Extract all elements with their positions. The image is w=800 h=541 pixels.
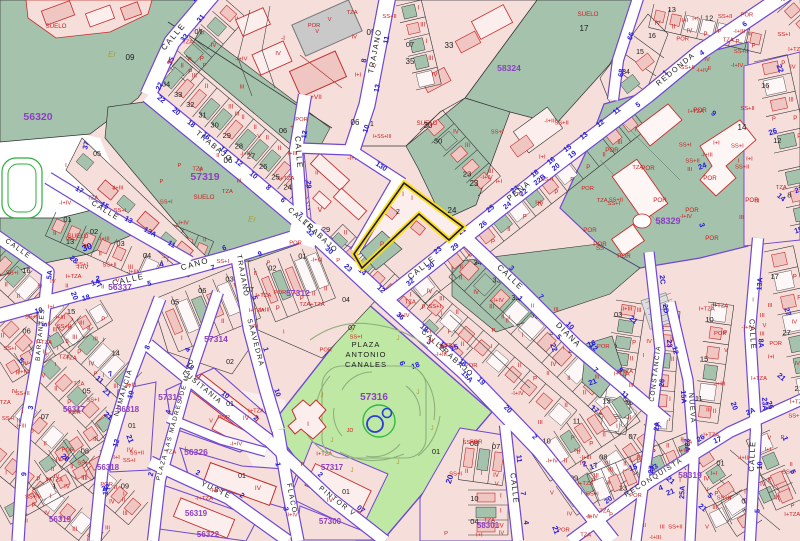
- svg-text:SS+I: SS+I: [731, 144, 744, 150]
- svg-text:POR: POR: [581, 186, 594, 192]
- svg-text:POR: POR: [465, 363, 478, 369]
- svg-text:II: II: [17, 294, 21, 300]
- svg-text:I+TZA: I+TZA: [784, 512, 800, 518]
- svg-text:13: 13: [602, 396, 610, 405]
- svg-text:I+TZA: I+TZA: [614, 372, 630, 378]
- svg-text:III: III: [81, 476, 86, 482]
- svg-text:IV: IV: [646, 339, 652, 345]
- svg-text:I+TZA: I+TZA: [751, 376, 767, 382]
- svg-text:14: 14: [738, 123, 747, 132]
- svg-text:2D: 2D: [661, 304, 671, 314]
- svg-text:11: 11: [514, 454, 524, 463]
- svg-text:J: J: [331, 438, 334, 444]
- svg-text:I+I: I+I: [682, 18, 689, 24]
- svg-text:-I+III: -I+III: [733, 29, 745, 35]
- svg-text:POR: POR: [289, 241, 302, 247]
- svg-text:P: P: [491, 240, 495, 246]
- svg-text:28: 28: [235, 141, 243, 150]
- svg-text:SS+I: SS+I: [586, 492, 599, 498]
- svg-text:29: 29: [304, 180, 314, 189]
- svg-text:POR: POR: [703, 175, 717, 182]
- svg-text:SS+I: SS+I: [37, 322, 50, 328]
- svg-text:V: V: [257, 134, 261, 140]
- svg-text:II: II: [564, 458, 568, 464]
- svg-text:J: J: [431, 426, 434, 432]
- svg-text:II: II: [87, 326, 91, 332]
- svg-text:II: II: [53, 231, 57, 237]
- svg-text:II: II: [672, 25, 676, 31]
- svg-text:IV: IV: [352, 34, 358, 40]
- svg-text:SS+II: SS+II: [102, 263, 117, 269]
- svg-text:SS+I: SS+I: [75, 262, 88, 268]
- svg-text:SUELO: SUELO: [194, 194, 215, 201]
- svg-text:SS+II: SS+II: [15, 391, 30, 397]
- svg-text:POR: POR: [641, 165, 655, 172]
- svg-text:12: 12: [299, 130, 309, 139]
- svg-text:SS+I: SS+I: [607, 201, 620, 207]
- svg-text:IV: IV: [109, 499, 115, 505]
- svg-text:-I+IV: -I+IV: [235, 57, 248, 63]
- svg-text:III: III: [72, 527, 77, 533]
- svg-text:I+TZA: I+TZA: [47, 478, 63, 484]
- svg-text:I+TZA: I+TZA: [66, 274, 82, 280]
- svg-text:11: 11: [695, 394, 703, 403]
- svg-text:-I+IV: -I+IV: [397, 313, 410, 319]
- svg-text:P: P: [735, 40, 739, 46]
- svg-text:5: 5: [753, 509, 762, 513]
- svg-text:II: II: [114, 485, 118, 491]
- svg-text:POR: POR: [308, 23, 321, 29]
- svg-text:I+TZA: I+TZA: [248, 409, 264, 415]
- svg-text:II: II: [216, 153, 220, 159]
- svg-text:J: J: [397, 460, 400, 466]
- svg-text:30: 30: [210, 121, 218, 130]
- svg-text:J: J: [351, 328, 354, 334]
- svg-text:56320: 56320: [23, 111, 52, 123]
- svg-text:IV: IV: [790, 65, 796, 71]
- svg-text:III: III: [789, 98, 794, 104]
- svg-text:I+I: I+I: [574, 448, 581, 454]
- svg-text:III: III: [637, 308, 642, 314]
- svg-text:J: J: [417, 390, 420, 396]
- svg-text:-I+IV: -I+IV: [176, 220, 189, 226]
- svg-text:III: III: [123, 511, 128, 517]
- svg-text:56337: 56337: [108, 282, 132, 292]
- svg-text:II: II: [713, 409, 717, 415]
- svg-text:SS+II: SS+II: [734, 49, 749, 55]
- svg-text:58329: 58329: [655, 216, 680, 226]
- svg-text:II: II: [671, 357, 675, 363]
- svg-text:SS+II: SS+II: [717, 496, 732, 502]
- svg-text:III: III: [105, 525, 110, 531]
- svg-text:IV: IV: [168, 60, 174, 66]
- svg-text:IV: IV: [12, 389, 18, 395]
- svg-text:POR: POR: [218, 415, 231, 421]
- svg-text:SS+I: SS+I: [2, 416, 15, 422]
- svg-text:III: III: [687, 167, 692, 173]
- svg-text:V: V: [724, 348, 728, 354]
- svg-text:II: II: [666, 443, 670, 449]
- svg-text:III: III: [235, 111, 240, 117]
- svg-text:II: II: [181, 63, 185, 69]
- svg-text:III: III: [617, 140, 622, 146]
- svg-text:II: II: [789, 462, 793, 468]
- svg-text:II: II: [266, 136, 270, 142]
- svg-text:CANALES: CANALES: [345, 360, 387, 369]
- svg-text:30: 30: [434, 136, 442, 145]
- svg-text:TZA: TZA: [73, 381, 84, 387]
- svg-text:III: III: [768, 303, 773, 309]
- svg-text:-I: -I: [281, 35, 285, 42]
- svg-text:P: P: [571, 436, 575, 442]
- svg-text:P: P: [791, 503, 795, 509]
- svg-text:57317: 57317: [321, 463, 344, 472]
- svg-text:01: 01: [342, 489, 350, 496]
- svg-text:TZA: TZA: [192, 167, 203, 173]
- svg-text:-I+IV: -I+IV: [59, 200, 72, 206]
- svg-text:II: II: [101, 285, 105, 291]
- svg-text:31: 31: [198, 110, 206, 119]
- svg-text:Er: Er: [108, 50, 116, 59]
- svg-text:-I+IV: -I+IV: [741, 325, 754, 331]
- svg-text:P: P: [751, 43, 755, 49]
- svg-text:56319: 56319: [49, 515, 72, 524]
- svg-text:IV: IV: [252, 324, 258, 330]
- svg-text:07: 07: [41, 412, 49, 421]
- svg-text:IV: IV: [473, 290, 479, 296]
- svg-text:-I+IV: -I+IV: [285, 513, 298, 519]
- svg-text:-I+III: -I+III: [738, 455, 750, 461]
- svg-text:15: 15: [636, 49, 644, 56]
- svg-text:I+I: I+I: [425, 329, 432, 335]
- svg-text:II: II: [99, 251, 103, 257]
- svg-text:-I+IV: -I+IV: [680, 214, 693, 220]
- svg-text:III: III: [428, 338, 433, 344]
- svg-text:07: 07: [406, 40, 414, 49]
- svg-text:SS+II: SS+II: [740, 106, 755, 112]
- svg-text:32: 32: [186, 100, 194, 109]
- svg-text:SS+I: SS+I: [3, 346, 16, 352]
- svg-text:III: III: [239, 85, 244, 91]
- svg-text:I+I: I+I: [495, 179, 502, 185]
- svg-text:I+I: I+I: [476, 532, 483, 538]
- svg-text:-I+IV: -I+IV: [731, 63, 744, 69]
- svg-text:57316: 57316: [360, 392, 388, 403]
- svg-text:II: II: [51, 467, 55, 473]
- svg-text:24: 24: [283, 183, 291, 192]
- svg-text:JD: JD: [347, 428, 354, 434]
- svg-text:-I+III: -I+III: [435, 352, 447, 358]
- svg-text:IV: IV: [211, 43, 217, 49]
- svg-text:III: III: [192, 74, 197, 80]
- svg-text:III: III: [747, 32, 752, 38]
- svg-text:TZA: TZA: [632, 165, 643, 171]
- svg-text:V: V: [767, 436, 771, 442]
- svg-text:II: II: [531, 304, 535, 310]
- svg-text:P: P: [491, 328, 495, 334]
- svg-text:I: I: [402, 191, 404, 198]
- svg-text:SS+II: SS+II: [382, 14, 397, 20]
- svg-text:-I+IV: -I+IV: [240, 151, 253, 157]
- svg-text:P: P: [591, 478, 595, 484]
- svg-text:V: V: [328, 17, 332, 23]
- svg-text:SS+II: SS+II: [130, 450, 145, 456]
- svg-text:23: 23: [463, 169, 471, 178]
- svg-text:11: 11: [573, 416, 581, 425]
- svg-text:I+I: I+I: [113, 455, 120, 461]
- svg-text:IV: IV: [704, 57, 710, 63]
- svg-text:SUELO: SUELO: [46, 23, 67, 30]
- svg-text:IV: IV: [493, 473, 499, 479]
- svg-text:58324: 58324: [497, 63, 521, 73]
- svg-text:IV: IV: [453, 130, 459, 136]
- svg-text:09: 09: [121, 481, 129, 490]
- svg-text:POR: POR: [676, 37, 689, 43]
- svg-text:III: III: [605, 461, 610, 467]
- svg-text:33: 33: [174, 90, 182, 99]
- svg-text:SS+II: SS+II: [680, 65, 695, 71]
- svg-text:04: 04: [143, 251, 151, 260]
- svg-text:12: 12: [773, 136, 781, 145]
- svg-text:P: P: [586, 165, 590, 171]
- svg-text:P: P: [68, 326, 72, 332]
- svg-text:SS+I: SS+I: [86, 398, 99, 404]
- svg-text:POR: POR: [470, 439, 483, 445]
- svg-text:II: II: [628, 416, 632, 422]
- svg-text:V: V: [65, 237, 69, 243]
- svg-text:01: 01: [298, 252, 306, 261]
- svg-text:I: I: [307, 421, 309, 428]
- svg-text:IV: IV: [551, 362, 557, 368]
- svg-text:II: II: [602, 433, 606, 439]
- svg-text:P: P: [177, 163, 181, 169]
- svg-text:06: 06: [351, 118, 360, 127]
- svg-text:68: 68: [616, 68, 626, 77]
- svg-text:56318: 56318: [97, 463, 120, 472]
- svg-text:CALLE: CALLE: [747, 319, 758, 351]
- svg-text:I+TZA: I+TZA: [688, 109, 704, 115]
- svg-text:I+TZA: I+TZA: [278, 176, 294, 182]
- svg-text:05: 05: [82, 386, 90, 395]
- svg-text:TZA: TZA: [87, 195, 98, 201]
- svg-text:09: 09: [126, 53, 135, 62]
- svg-text:P: P: [336, 258, 340, 264]
- svg-text:TZA: TZA: [0, 400, 11, 406]
- svg-text:-I+IV: -I+IV: [676, 448, 689, 454]
- svg-text:01: 01: [128, 423, 136, 430]
- svg-text:II: II: [65, 339, 69, 345]
- svg-text:P: P: [523, 215, 527, 221]
- svg-text:24: 24: [448, 206, 457, 215]
- svg-text:10: 10: [470, 494, 478, 503]
- svg-text:I+I: I+I: [746, 156, 753, 162]
- svg-text:II: II: [43, 350, 47, 356]
- svg-text:-I+III: -I+III: [649, 535, 661, 541]
- svg-text:SS+I: SS+I: [428, 304, 441, 310]
- svg-text:P: P: [772, 116, 776, 122]
- svg-text:II: II: [205, 84, 209, 90]
- svg-text:-I+IV: -I+IV: [511, 391, 524, 397]
- svg-text:-I+III: -I+III: [258, 308, 270, 314]
- svg-text:II: II: [507, 227, 511, 233]
- svg-text:03: 03: [116, 239, 124, 248]
- svg-text:I+I: I+I: [765, 447, 772, 453]
- svg-text:II: II: [54, 387, 58, 393]
- svg-text:III: III: [538, 420, 543, 426]
- svg-text:III: III: [760, 313, 765, 319]
- svg-text:I+I: I+I: [692, 17, 699, 23]
- svg-text:TZA+TZA: TZA+TZA: [299, 302, 324, 308]
- svg-text:9: 9: [19, 472, 28, 477]
- svg-text:56319: 56319: [185, 509, 208, 518]
- svg-text:II: II: [5, 283, 9, 289]
- svg-text:II: II: [643, 523, 647, 529]
- svg-text:SS+I: SS+I: [123, 458, 136, 464]
- svg-text:04: 04: [342, 297, 350, 304]
- svg-text:I+TZA: I+TZA: [712, 303, 728, 309]
- svg-text:P: P: [101, 317, 105, 323]
- svg-text:57315: 57315: [158, 392, 182, 402]
- svg-text:POR: POR: [605, 147, 619, 154]
- svg-text:I+TZA: I+TZA: [790, 399, 800, 405]
- svg-text:III: III: [760, 332, 765, 338]
- svg-text:SS+I: SS+I: [216, 259, 229, 265]
- svg-text:-I+IV: -I+IV: [480, 175, 493, 181]
- svg-text:V: V: [116, 278, 120, 284]
- svg-text:IV: IV: [23, 361, 29, 367]
- svg-text:I+I: I+I: [354, 73, 361, 79]
- svg-text:POR: POR: [653, 197, 667, 204]
- svg-text:IV: IV: [243, 415, 250, 422]
- svg-text:27: 27: [783, 328, 791, 337]
- svg-text:-I+III: -I+III: [53, 315, 65, 321]
- svg-text:POR: POR: [583, 227, 597, 234]
- svg-text:J: J: [351, 468, 354, 474]
- svg-text:P: P: [589, 441, 593, 447]
- svg-text:07: 07: [246, 287, 254, 294]
- svg-text:TZA: TZA: [723, 38, 734, 44]
- svg-text:II: II: [221, 319, 225, 325]
- svg-text:III: III: [465, 143, 470, 149]
- svg-text:SS+I: SS+I: [777, 32, 790, 38]
- svg-text:POR: POR: [629, 493, 642, 499]
- svg-text:V: V: [705, 524, 709, 530]
- svg-text:I+SS+III: I+SS+III: [373, 134, 392, 140]
- svg-text:TZA: TZA: [599, 509, 610, 515]
- svg-text:IV: IV: [517, 192, 523, 198]
- svg-text:II: II: [456, 310, 460, 316]
- svg-text:III: III: [93, 337, 98, 343]
- svg-text:SS+I: SS+I: [679, 142, 692, 148]
- svg-text:III: III: [428, 56, 433, 62]
- svg-text:IV: IV: [792, 320, 798, 326]
- svg-text:-I+IV: -I+IV: [17, 370, 30, 376]
- svg-text:10: 10: [705, 315, 713, 324]
- svg-text:2C: 2C: [658, 275, 668, 285]
- svg-text:15A: 15A: [679, 390, 689, 404]
- svg-text:II: II: [518, 363, 522, 369]
- svg-text:14: 14: [112, 349, 120, 358]
- svg-text:III: III: [113, 384, 118, 390]
- svg-text:Er: Er: [248, 215, 256, 224]
- svg-text:-I+III: -I+III: [286, 151, 298, 157]
- svg-text:POR: POR: [617, 253, 631, 260]
- svg-text:P: P: [276, 306, 280, 312]
- svg-text:II: II: [70, 465, 74, 471]
- svg-text:II: II: [344, 230, 348, 236]
- svg-text:V: V: [705, 487, 709, 493]
- svg-text:-I+TZA: -I+TZA: [195, 496, 213, 502]
- svg-text:IV: IV: [89, 362, 95, 368]
- svg-text:III: III: [706, 408, 711, 414]
- svg-text:06: 06: [22, 326, 30, 335]
- svg-text:III: III: [439, 297, 444, 303]
- svg-text:+VII: +VII: [310, 94, 322, 101]
- svg-text:P: P: [703, 32, 707, 38]
- svg-text:I+I: I+I: [711, 471, 718, 477]
- svg-text:-I+III: -I+III: [713, 382, 725, 388]
- svg-text:-I+III: -I+III: [127, 269, 139, 275]
- svg-text:SS+II: SS+II: [668, 524, 683, 530]
- svg-text:TZA: TZA: [484, 518, 495, 524]
- svg-text:P: P: [444, 531, 448, 537]
- svg-text:57314: 57314: [204, 334, 228, 344]
- svg-text:35: 35: [406, 57, 415, 66]
- svg-text:P: P: [554, 190, 558, 196]
- svg-text:II: II: [501, 315, 505, 321]
- svg-text:IV: IV: [499, 530, 505, 536]
- svg-text:III: III: [739, 215, 744, 221]
- svg-text:16: 16: [648, 33, 656, 40]
- svg-text:SS+I: SS+I: [491, 130, 504, 136]
- svg-text:01: 01: [432, 447, 440, 456]
- svg-text:58319: 58319: [678, 470, 702, 480]
- svg-text:IV: IV: [567, 511, 573, 517]
- svg-text:IV: IV: [655, 21, 661, 27]
- svg-text:IV: IV: [794, 361, 800, 367]
- svg-text:IV: IV: [275, 51, 281, 57]
- svg-text:POR: POR: [597, 344, 610, 350]
- svg-text:8A: 8A: [757, 338, 767, 348]
- svg-text:II: II: [564, 403, 568, 409]
- svg-text:II: II: [65, 284, 69, 290]
- svg-text:23: 23: [470, 179, 479, 188]
- svg-text:III: III: [489, 304, 494, 310]
- svg-text:III: III: [37, 284, 42, 290]
- svg-text:-I+IV: -I+IV: [696, 68, 709, 74]
- svg-text:II: II: [567, 376, 571, 382]
- svg-text:I+I: I+I: [713, 141, 720, 147]
- svg-text:POR: POR: [705, 235, 719, 242]
- svg-text:I+TZA: I+TZA: [255, 293, 271, 299]
- svg-text:15: 15: [67, 307, 75, 316]
- svg-text:SS+II: SS+II: [735, 165, 750, 171]
- svg-text:SS+I: SS+I: [25, 315, 38, 321]
- svg-text:P: P: [301, 462, 305, 468]
- svg-text:III: III: [93, 437, 98, 443]
- svg-text:15: 15: [700, 355, 708, 364]
- svg-text:P: P: [200, 56, 204, 62]
- svg-text:IV: IV: [50, 279, 56, 285]
- svg-text:01: 01: [226, 401, 234, 408]
- svg-text:P: P: [159, 179, 163, 185]
- svg-text:57312: 57312: [286, 288, 310, 298]
- svg-text:IV: IV: [427, 289, 433, 295]
- svg-text:II: II: [324, 287, 328, 293]
- svg-text:ANTONIO: ANTONIO: [345, 350, 386, 359]
- svg-text:01: 01: [716, 459, 724, 468]
- svg-text:13A: 13A: [754, 277, 764, 291]
